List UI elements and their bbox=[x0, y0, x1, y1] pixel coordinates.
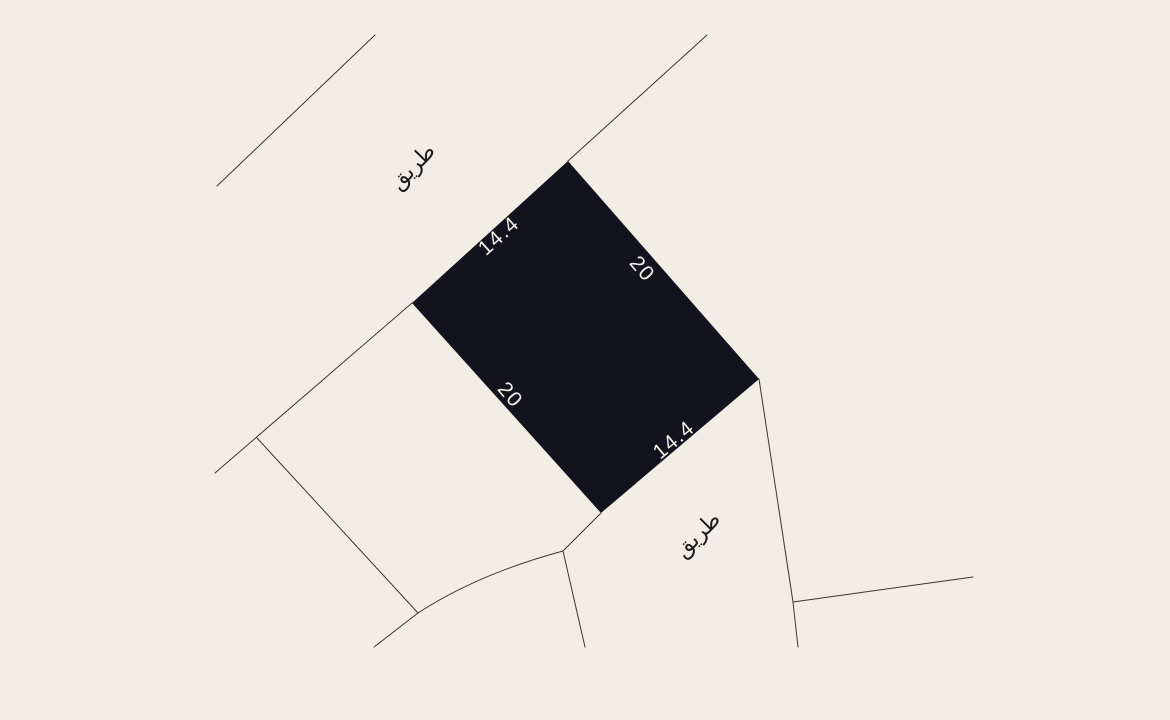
map-canvas[interactable]: 14.4 20 20 14.4 طريق طريق bbox=[0, 0, 1170, 720]
cadastral-map-svg: 14.4 20 20 14.4 طريق طريق bbox=[0, 0, 1170, 720]
